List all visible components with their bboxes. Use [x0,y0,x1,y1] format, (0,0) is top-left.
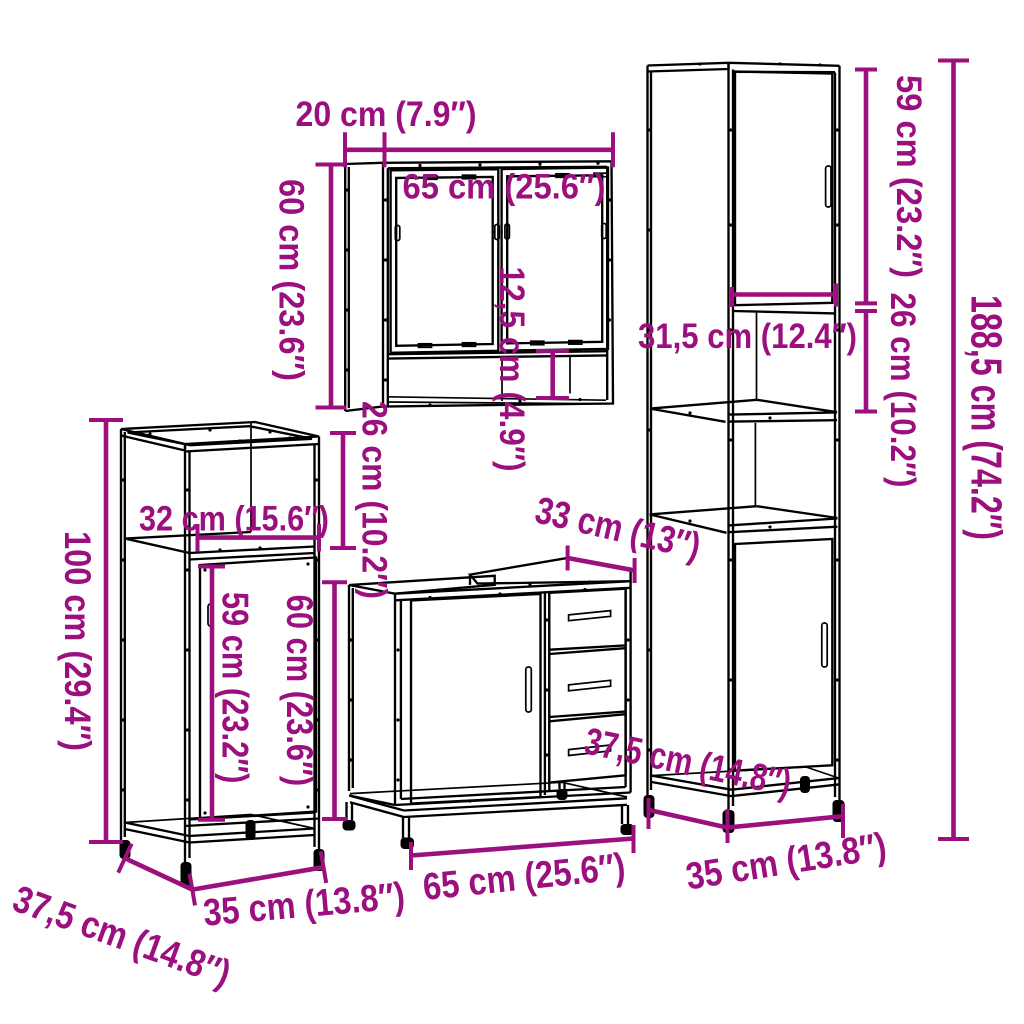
svg-text:60 cm (23.6″): 60 cm (23.6″) [272,179,311,381]
svg-text:188,5 cm (74.2″): 188,5 cm (74.2″) [962,295,1011,540]
svg-text:65 cm (25.6″): 65 cm (25.6″) [403,168,606,207]
svg-text:59 cm (23.2″): 59 cm (23.2″) [215,592,256,784]
svg-text:20 cm (7.9″): 20 cm (7.9″) [296,95,477,134]
svg-text:32 cm (15.6″): 32 cm (15.6″) [139,500,329,539]
svg-text:31,5 cm (12.4″): 31,5 cm (12.4″) [638,317,857,356]
svg-text:59 cm (23.2″): 59 cm (23.2″) [889,75,928,278]
svg-text:26 cm (10.2″): 26 cm (10.2″) [354,401,393,599]
svg-text:60 cm (23.6″): 60 cm (23.6″) [279,595,320,787]
svg-text:12,5 cm (4.9″): 12,5 cm (4.9″) [492,267,531,472]
svg-text:26 cm (10.2″): 26 cm (10.2″) [883,293,922,488]
svg-text:100 cm (29.4″): 100 cm (29.4″) [57,531,98,751]
